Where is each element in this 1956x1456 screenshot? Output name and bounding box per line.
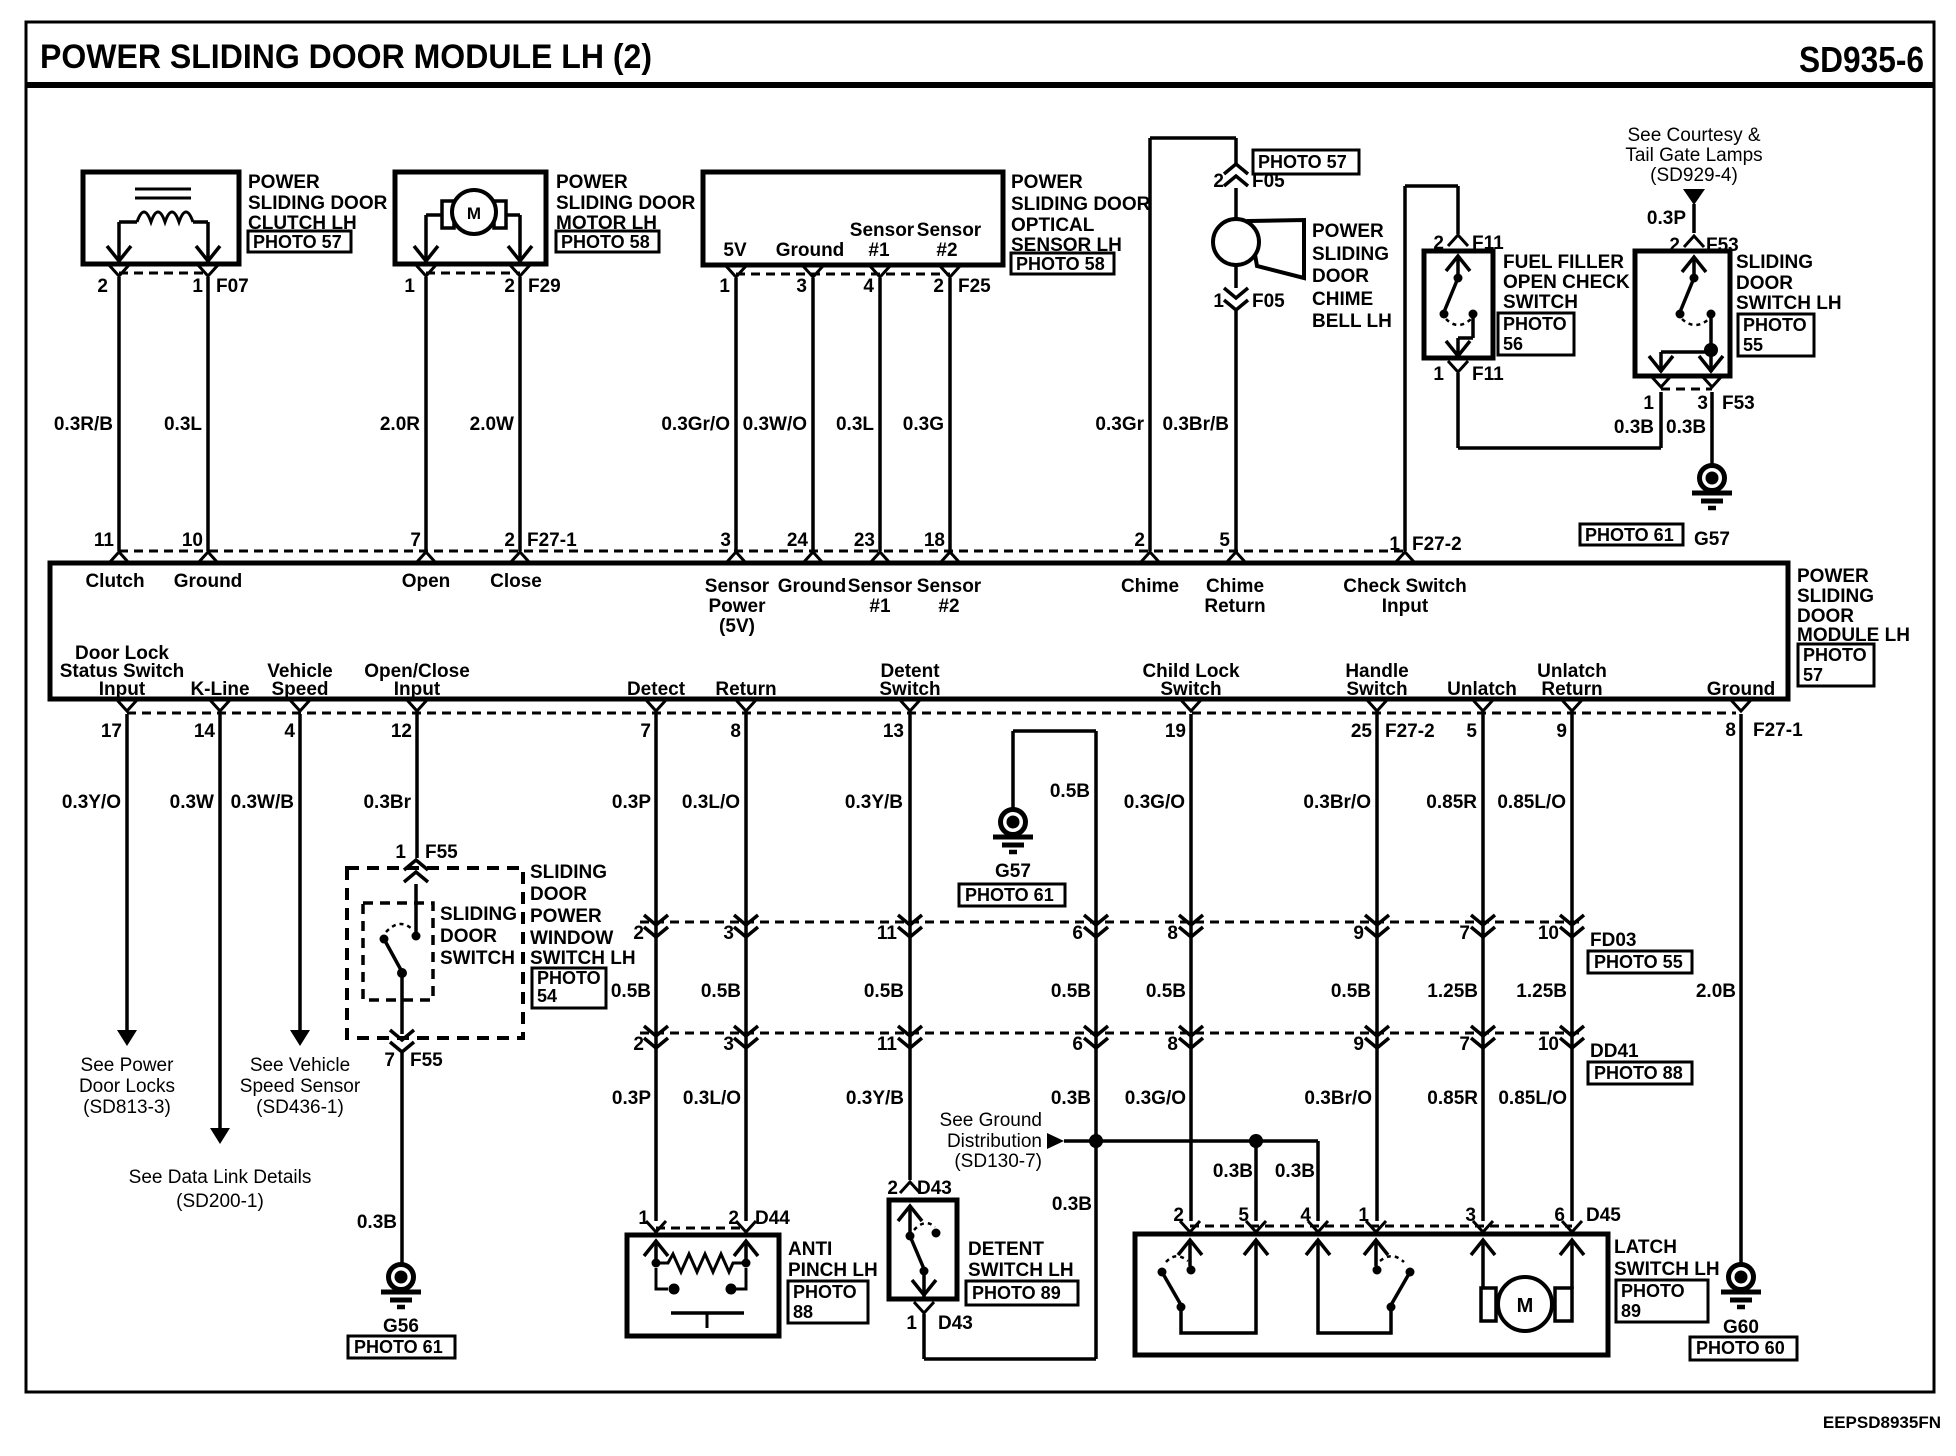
svg-text:PHOTO 60: PHOTO 60 [1696,1338,1785,1358]
svg-text:0.3P: 0.3P [1647,208,1686,229]
svg-text:M: M [467,204,481,223]
svg-text:D45: D45 [1586,1205,1621,1226]
svg-text:Unlatch: Unlatch [1447,679,1517,700]
svg-text:Return: Return [1204,596,1265,617]
svg-text:Tail Gate Lamps: Tail Gate Lamps [1625,145,1762,166]
svg-text:9: 9 [1353,1034,1364,1055]
svg-text:PHOTO 57: PHOTO 57 [253,232,342,252]
svg-text:1: 1 [1643,393,1654,414]
svg-text:0.3B: 0.3B [357,1212,397,1233]
svg-text:Switch: Switch [1346,679,1407,700]
svg-text:18: 18 [924,530,945,551]
svg-text:24: 24 [787,530,809,551]
svg-text:19: 19 [1165,721,1186,742]
svg-text:See Data Link Details: See Data Link Details [129,1167,312,1188]
svg-text:0.3L/O: 0.3L/O [683,1088,741,1109]
svg-text:5V: 5V [723,240,747,261]
svg-text:WINDOW: WINDOW [530,928,613,949]
svg-text:Chime: Chime [1121,576,1179,597]
svg-text:D43: D43 [938,1313,973,1334]
svg-text:14: 14 [194,721,216,742]
svg-text:SLIDING: SLIDING [1312,244,1389,265]
svg-text:DOOR: DOOR [530,884,587,905]
svg-text:OPEN CHECK: OPEN CHECK [1503,272,1630,293]
svg-text:1: 1 [719,276,730,297]
svg-text:EEPSD8935FN: EEPSD8935FN [1823,1413,1941,1432]
svg-text:0.3B: 0.3B [1275,1161,1315,1182]
svg-text:F11: F11 [1472,364,1504,385]
svg-text:2: 2 [633,923,644,944]
svg-text:Open: Open [402,571,451,592]
svg-text:Ground: Ground [1707,679,1776,700]
svg-text:Detect: Detect [627,679,686,700]
svg-text:SLIDING DOOR: SLIDING DOOR [248,193,388,214]
svg-text:7: 7 [1459,1034,1470,1055]
svg-text:11: 11 [877,1034,898,1055]
svg-text:1.25B: 1.25B [1516,981,1567,1002]
svg-text:Sensor: Sensor [850,220,915,241]
svg-text:54: 54 [537,986,557,1006]
svg-text:8: 8 [1167,923,1178,944]
svg-text:0.3L: 0.3L [164,414,202,435]
svg-text:SWITCH: SWITCH [1503,292,1578,313]
svg-text:2: 2 [933,276,944,297]
svg-text:0.5B: 0.5B [1146,981,1186,1002]
svg-text:7: 7 [640,721,651,742]
svg-text:1: 1 [192,276,203,297]
svg-text:G56: G56 [383,1316,419,1337]
svg-text:0.85L/O: 0.85L/O [1498,1088,1567,1109]
svg-text:POWER: POWER [556,172,628,193]
svg-text:4: 4 [284,721,295,742]
svg-text:#1: #1 [868,240,890,261]
svg-text:0.3W/B: 0.3W/B [231,792,294,813]
svg-text:Speed Sensor: Speed Sensor [240,1076,361,1097]
svg-text:DOOR: DOOR [1312,266,1369,287]
svg-text:D44: D44 [755,1208,790,1229]
svg-text:(SD130-7): (SD130-7) [954,1151,1042,1172]
svg-text:1: 1 [395,842,406,863]
svg-text:Ground: Ground [174,571,243,592]
svg-text:12: 12 [391,721,412,742]
svg-text:(SD200-1): (SD200-1) [176,1191,264,1212]
svg-text:SD935-6: SD935-6 [1799,39,1924,80]
svg-text:PHOTO 58: PHOTO 58 [561,232,650,252]
svg-text:F27-1: F27-1 [527,530,577,551]
svg-text:Chime: Chime [1206,576,1264,597]
svg-text:POWER: POWER [1797,566,1869,587]
svg-text:Check Switch: Check Switch [1343,576,1467,597]
svg-text:0.3L/O: 0.3L/O [682,792,740,813]
svg-text:0.3B: 0.3B [1052,1194,1092,1215]
svg-text:0.3G/O: 0.3G/O [1125,1088,1186,1109]
svg-text:PHOTO: PHOTO [1803,645,1867,665]
svg-text:SLIDING DOOR: SLIDING DOOR [556,193,696,214]
svg-text:PHOTO 88: PHOTO 88 [1594,1063,1683,1083]
svg-text:PHOTO: PHOTO [1621,1281,1685,1301]
svg-text:FD03: FD03 [1590,930,1636,951]
svg-text:5: 5 [1466,721,1477,742]
svg-text:(SD813-3): (SD813-3) [83,1097,171,1118]
svg-text:0.5B: 0.5B [1050,781,1090,802]
svg-text:F05: F05 [1252,171,1285,192]
svg-text:9: 9 [1556,721,1567,742]
svg-text:2: 2 [504,530,515,551]
svg-text:Door Locks: Door Locks [79,1076,175,1097]
svg-text:POWER: POWER [1312,221,1384,242]
svg-text:25: 25 [1351,721,1373,742]
svg-text:PHOTO: PHOTO [537,968,601,988]
svg-text:Sensor: Sensor [848,576,913,597]
svg-text:0.85L/O: 0.85L/O [1497,792,1566,813]
svg-text:0.5B: 0.5B [1331,981,1371,1002]
svg-text:9: 9 [1353,923,1364,944]
svg-text:Ground: Ground [778,576,847,597]
svg-text:PHOTO 58: PHOTO 58 [1016,254,1105,274]
svg-text:3: 3 [1465,1205,1476,1226]
svg-text:2: 2 [504,276,515,297]
svg-text:1: 1 [404,276,415,297]
svg-text:0.85R: 0.85R [1427,1088,1478,1109]
svg-text:SLIDING: SLIDING [530,862,607,883]
svg-text:0.3Y/O: 0.3Y/O [62,792,121,813]
svg-text:6: 6 [1554,1205,1565,1226]
svg-text:F29: F29 [528,276,561,297]
svg-text:2.0R: 2.0R [380,414,420,435]
svg-text:#2: #2 [936,240,957,261]
svg-text:17: 17 [101,721,122,742]
svg-text:2: 2 [1134,530,1145,551]
svg-text:0.3R/B: 0.3R/B [54,414,113,435]
svg-text:G57: G57 [1694,529,1730,550]
svg-text:SWITCH LH: SWITCH LH [1614,1259,1720,1280]
svg-text:3: 3 [723,923,734,944]
svg-text:55: 55 [1743,335,1763,355]
svg-text:Return: Return [1541,679,1602,700]
svg-text:10: 10 [1538,1034,1559,1055]
svg-text:Sensor: Sensor [917,220,982,241]
svg-text:SWITCH LH: SWITCH LH [1736,293,1842,314]
svg-text:Power: Power [708,596,766,617]
svg-text:0.3B: 0.3B [1051,1088,1091,1109]
svg-text:1: 1 [1389,534,1400,555]
svg-text:See Courtesy &: See Courtesy & [1627,125,1760,146]
svg-text:DD41: DD41 [1590,1041,1639,1062]
svg-text:2: 2 [728,1208,739,1229]
svg-text:1: 1 [1358,1205,1369,1226]
svg-text:Input: Input [394,679,441,700]
svg-text:PINCH LH: PINCH LH [788,1260,878,1281]
svg-text:0.3Y/B: 0.3Y/B [846,1088,904,1109]
svg-text:0.3Gr/O: 0.3Gr/O [661,414,730,435]
svg-text:6: 6 [1072,923,1083,944]
svg-text:F25: F25 [958,276,991,297]
svg-text:0.3P: 0.3P [612,1088,651,1109]
svg-text:0.3Gr: 0.3Gr [1095,414,1144,435]
svg-text:POWER: POWER [1011,172,1083,193]
svg-text:FUEL FILLER: FUEL FILLER [1503,252,1624,273]
svg-text:#1: #1 [869,596,891,617]
svg-text:POWER SLIDING DOOR MODULE LH (: POWER SLIDING DOOR MODULE LH (2) [40,38,652,76]
svg-text:1.25B: 1.25B [1427,981,1478,1002]
svg-text:8: 8 [730,721,741,742]
svg-text:SWITCH LH: SWITCH LH [530,948,636,969]
svg-text:0.3P: 0.3P [612,792,651,813]
svg-text:PHOTO: PHOTO [1743,315,1807,335]
svg-text:G60: G60 [1723,1317,1759,1338]
svg-text:DOOR: DOOR [1797,606,1854,627]
svg-text:0.3G: 0.3G [903,414,944,435]
svg-text:2: 2 [97,276,108,297]
svg-text:PHOTO 55: PHOTO 55 [1594,952,1683,972]
svg-text:G57: G57 [995,861,1031,882]
svg-text:DETENT: DETENT [968,1239,1044,1260]
svg-text:3: 3 [723,1034,734,1055]
svg-text:0.3B: 0.3B [1614,417,1654,438]
svg-text:SLIDING: SLIDING [1736,252,1813,273]
svg-text:8: 8 [1167,1034,1178,1055]
svg-text:0.3L: 0.3L [836,414,874,435]
svg-text:4: 4 [863,276,874,297]
svg-text:PHOTO 89: PHOTO 89 [972,1283,1061,1303]
svg-text:3: 3 [720,530,731,551]
svg-text:(SD436-1): (SD436-1) [256,1097,344,1118]
svg-text:2: 2 [633,1034,644,1055]
svg-text:Switch: Switch [879,679,940,700]
svg-text:PHOTO 61: PHOTO 61 [965,885,1054,905]
svg-text:11: 11 [877,923,898,944]
svg-text:#2: #2 [938,596,959,617]
svg-text:Switch: Switch [1160,679,1221,700]
svg-text:1: 1 [638,1208,649,1229]
svg-text:OPTICAL: OPTICAL [1011,215,1095,236]
svg-text:88: 88 [793,1302,813,1322]
svg-text:0.3W/O: 0.3W/O [743,414,807,435]
svg-text:5: 5 [1219,530,1230,551]
svg-text:POWER: POWER [248,172,320,193]
svg-text:Clutch: Clutch [85,571,144,592]
svg-text:Speed: Speed [271,679,328,700]
svg-text:2.0W: 2.0W [470,414,514,435]
svg-text:2.0B: 2.0B [1696,981,1736,1002]
svg-text:Sensor: Sensor [917,576,982,597]
svg-text:CHIME: CHIME [1312,289,1373,310]
svg-text:1: 1 [1213,291,1224,312]
svg-text:7: 7 [384,1050,395,1071]
svg-text:Sensor: Sensor [705,576,770,597]
svg-text:F53: F53 [1722,393,1755,414]
svg-text:0.3W: 0.3W [170,792,214,813]
svg-text:PHOTO 61: PHOTO 61 [1585,525,1674,545]
svg-text:57: 57 [1803,665,1823,685]
svg-text:F05: F05 [1252,291,1285,312]
svg-text:0.5B: 0.5B [611,981,651,1002]
svg-text:0.3G/O: 0.3G/O [1124,792,1185,813]
svg-text:0.3Y/B: 0.3Y/B [845,792,903,813]
svg-text:0.3B: 0.3B [1213,1161,1253,1182]
svg-text:M: M [1517,1295,1534,1317]
svg-text:10: 10 [1538,923,1559,944]
svg-text:2: 2 [1173,1205,1184,1226]
svg-text:7: 7 [1459,923,1470,944]
svg-text:BELL LH: BELL LH [1312,311,1392,332]
svg-text:13: 13 [883,721,904,742]
svg-text:PHOTO 57: PHOTO 57 [1258,152,1347,172]
svg-text:SLIDING: SLIDING [1797,586,1874,607]
svg-text:ANTI: ANTI [788,1239,832,1260]
svg-text:SWITCH: SWITCH [440,948,515,969]
svg-text:DOOR: DOOR [440,926,497,947]
svg-text:See Vehicle: See Vehicle [250,1055,350,1076]
svg-text:SLIDING: SLIDING [440,904,517,925]
svg-text:Distribution: Distribution [947,1131,1042,1152]
svg-text:F27-2: F27-2 [1412,534,1462,555]
svg-text:See Ground: See Ground [940,1110,1042,1131]
svg-text:PHOTO: PHOTO [793,1282,857,1302]
svg-text:LATCH: LATCH [1614,1237,1677,1258]
svg-text:0.5B: 0.5B [1051,981,1091,1002]
svg-text:6: 6 [1072,1034,1083,1055]
svg-text:0.3Br/O: 0.3Br/O [1303,792,1371,813]
svg-text:POWER: POWER [530,906,602,927]
svg-text:0.85R: 0.85R [1426,792,1477,813]
svg-text:PHOTO: PHOTO [1503,314,1567,334]
svg-text:89: 89 [1621,1301,1641,1321]
svg-text:0.3Br/O: 0.3Br/O [1304,1088,1372,1109]
svg-text:2: 2 [887,1178,898,1199]
svg-text:3: 3 [796,276,807,297]
svg-text:Close: Close [490,571,542,592]
svg-text:0.3B: 0.3B [1666,417,1706,438]
svg-text:K-Line: K-Line [190,679,249,700]
svg-text:0.5B: 0.5B [864,981,904,1002]
svg-text:F55: F55 [410,1050,443,1071]
svg-text:See Power: See Power [81,1055,175,1076]
svg-text:PHOTO 61: PHOTO 61 [354,1337,443,1357]
svg-text:4: 4 [1300,1205,1311,1226]
svg-text:10: 10 [182,530,203,551]
svg-text:(5V): (5V) [719,616,755,637]
svg-text:2: 2 [1213,171,1224,192]
svg-text:1: 1 [1433,364,1444,385]
svg-text:Ground: Ground [776,240,845,261]
svg-text:F27-1: F27-1 [1753,720,1803,741]
svg-text:F07: F07 [216,276,249,297]
svg-text:23: 23 [854,530,875,551]
svg-text:F55: F55 [425,842,458,863]
svg-text:SWITCH LH: SWITCH LH [968,1260,1074,1281]
svg-text:0.3Br/B: 0.3Br/B [1162,414,1229,435]
svg-text:SLIDING DOOR: SLIDING DOOR [1011,194,1151,215]
svg-text:5: 5 [1238,1205,1249,1226]
svg-text:D43: D43 [917,1178,952,1199]
svg-text:3: 3 [1697,393,1708,414]
svg-text:0.5B: 0.5B [701,981,741,1002]
svg-text:1: 1 [906,1313,917,1334]
svg-text:Input: Input [99,679,146,700]
svg-text:56: 56 [1503,334,1523,354]
svg-text:11: 11 [94,530,115,551]
svg-text:(SD929-4): (SD929-4) [1650,165,1738,186]
svg-text:Input: Input [1382,596,1429,617]
svg-text:DOOR: DOOR [1736,273,1793,294]
svg-text:7: 7 [410,530,421,551]
svg-text:F27-2: F27-2 [1385,721,1435,742]
svg-text:Return: Return [715,679,776,700]
svg-text:0.3Br: 0.3Br [363,792,411,813]
svg-text:8: 8 [1725,720,1736,741]
